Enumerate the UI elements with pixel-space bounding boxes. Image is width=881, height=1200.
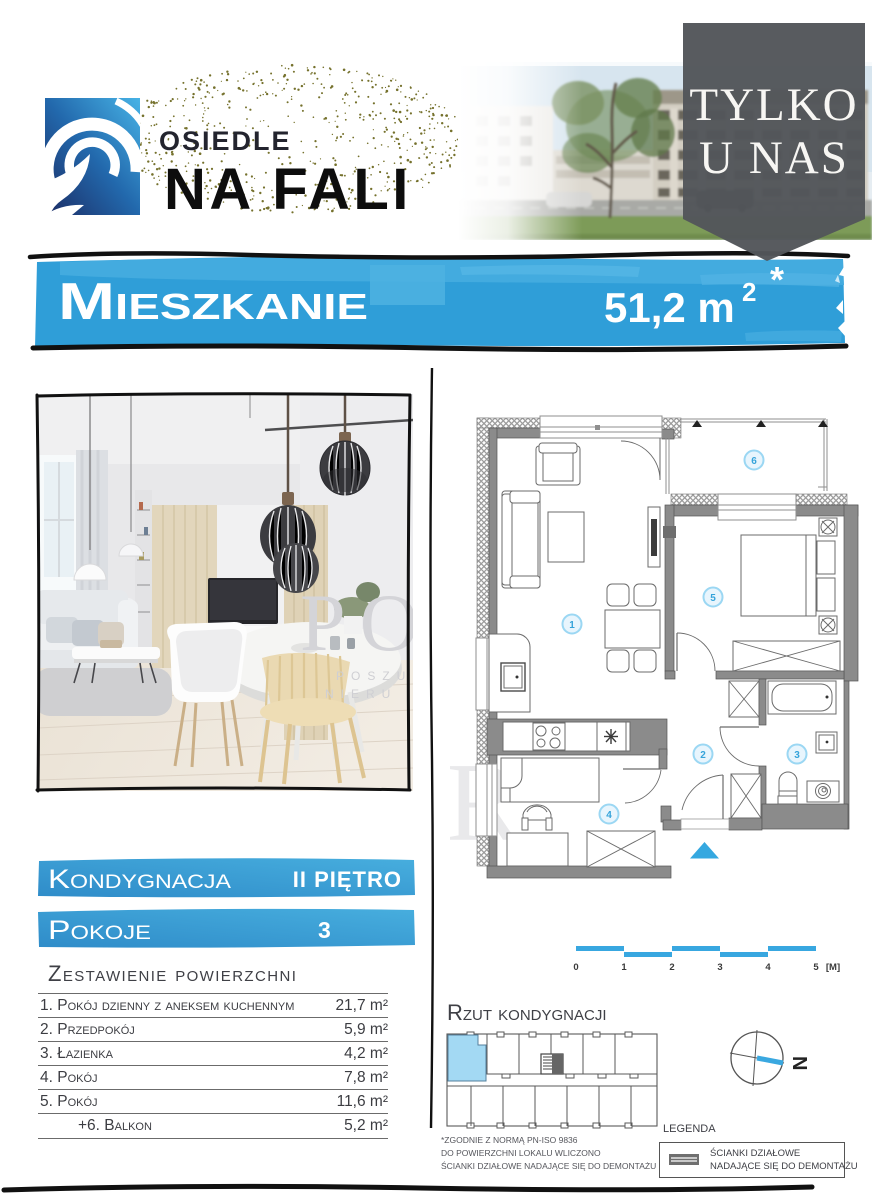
- svg-text:4: 4: [606, 810, 612, 821]
- svg-text:II PIĘTRO: II PIĘTRO: [293, 867, 402, 892]
- svg-text:5: 5: [710, 593, 716, 604]
- svg-text:3: 3: [717, 962, 722, 973]
- svg-text:*: *: [770, 259, 784, 300]
- svg-text:3: 3: [318, 917, 331, 943]
- svg-text:6: 6: [751, 456, 757, 467]
- svg-text:2: 2: [700, 750, 706, 761]
- svg-text:Mieszkanie: Mieszkanie: [58, 273, 368, 331]
- svg-text:4: 4: [765, 962, 771, 973]
- svg-text:3: 3: [794, 750, 800, 761]
- svg-text:1: 1: [621, 962, 627, 973]
- svg-text:Kondygnacja: Kondygnacja: [48, 864, 231, 894]
- svg-text:0: 0: [573, 962, 578, 973]
- svg-text:Pokoje: Pokoje: [48, 915, 151, 945]
- svg-text:1: 1: [569, 620, 575, 631]
- svg-text:N: N: [788, 1056, 810, 1070]
- svg-text:POSZU: POSZU: [336, 669, 412, 683]
- svg-text:[M]: [M]: [826, 962, 840, 973]
- svg-text:TYLKO: TYLKO: [689, 79, 858, 131]
- svg-text:51,2 m: 51,2 m: [604, 284, 735, 331]
- svg-text:PO: PO: [300, 577, 425, 668]
- svg-text:NIERU: NIERU: [325, 687, 397, 701]
- svg-text:2: 2: [742, 277, 756, 307]
- svg-text:5: 5: [813, 962, 819, 973]
- svg-text:U NAS: U NAS: [699, 132, 849, 184]
- svg-text:2: 2: [669, 962, 674, 973]
